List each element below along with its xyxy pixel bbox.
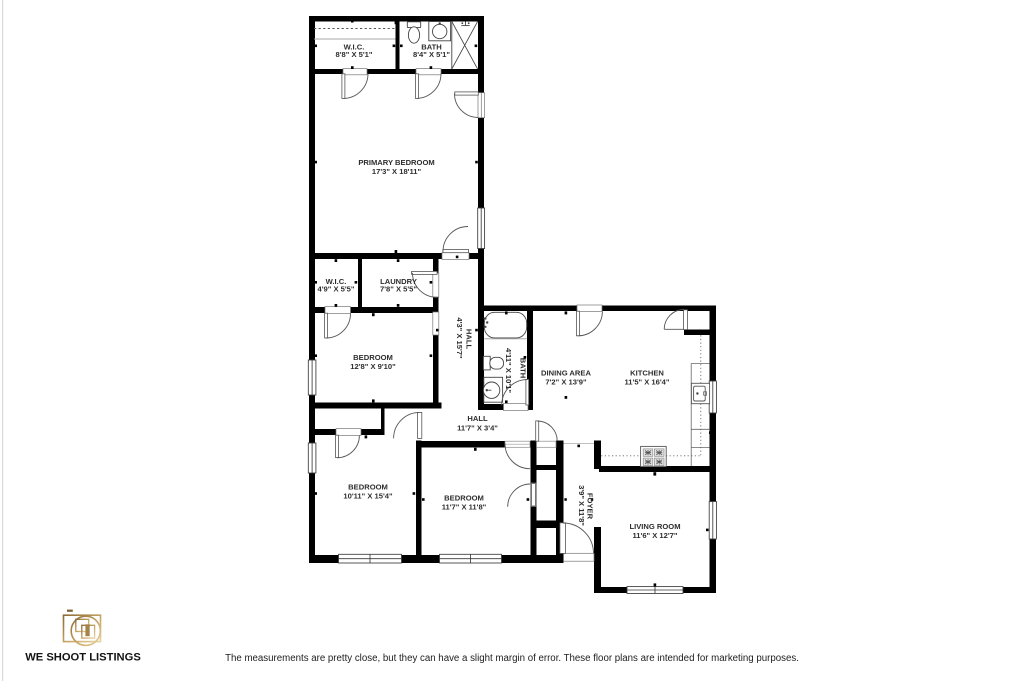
svg-text:BEDROOM: BEDROOM	[348, 483, 388, 492]
svg-text:HALL: HALL	[467, 414, 488, 423]
svg-text:11'7" X 3'4": 11'7" X 3'4"	[457, 424, 498, 433]
svg-text:KITCHEN: KITCHEN	[630, 369, 664, 378]
svg-text:7'8" X 5'5": 7'8" X 5'5"	[380, 285, 417, 294]
svg-text:11'7" X 11'8": 11'7" X 11'8"	[442, 503, 487, 512]
svg-text:BEDROOM: BEDROOM	[444, 494, 484, 503]
svg-text:17'3" X 18'11": 17'3" X 18'11"	[372, 167, 422, 176]
svg-text:8'4" X 5'1": 8'4" X 5'1"	[413, 50, 450, 59]
svg-text:8'8" X 5'1": 8'8" X 5'1"	[336, 50, 373, 59]
svg-text:7'2" X 13'9": 7'2" X 13'9"	[545, 378, 587, 387]
svg-text:11'5" X 16'4": 11'5" X 16'4"	[624, 378, 669, 387]
svg-text:4'9" X 5'5": 4'9" X 5'5"	[318, 285, 355, 294]
svg-text:DINING AREA: DINING AREA	[541, 369, 591, 378]
svg-text:3'9" X 11'8": 3'9" X 11'8"	[577, 485, 586, 526]
svg-text:BATH: BATH	[519, 358, 528, 379]
svg-text:12'8" X 9'10": 12'8" X 9'10"	[350, 362, 396, 371]
svg-text:10'11" X 15'4": 10'11" X 15'4"	[343, 492, 393, 501]
svg-text:PRIMARY BEDROOM: PRIMARY BEDROOM	[358, 158, 434, 167]
svg-text:HALL: HALL	[465, 329, 474, 350]
svg-text:4'11" X 10'1": 4'11" X 10'1"	[504, 348, 513, 393]
svg-text:WE SHOOT LISTINGS: WE SHOOT LISTINGS	[25, 652, 141, 664]
svg-text:BEDROOM: BEDROOM	[353, 353, 393, 362]
svg-text:11'6" X 12'7": 11'6" X 12'7"	[632, 531, 677, 540]
svg-text:LIVING ROOM: LIVING ROOM	[629, 522, 680, 531]
svg-text:The measurements are pretty cl: The measurements are pretty close, but t…	[225, 653, 799, 664]
svg-text:4'3" X 15'7": 4'3" X 15'7"	[455, 317, 464, 359]
